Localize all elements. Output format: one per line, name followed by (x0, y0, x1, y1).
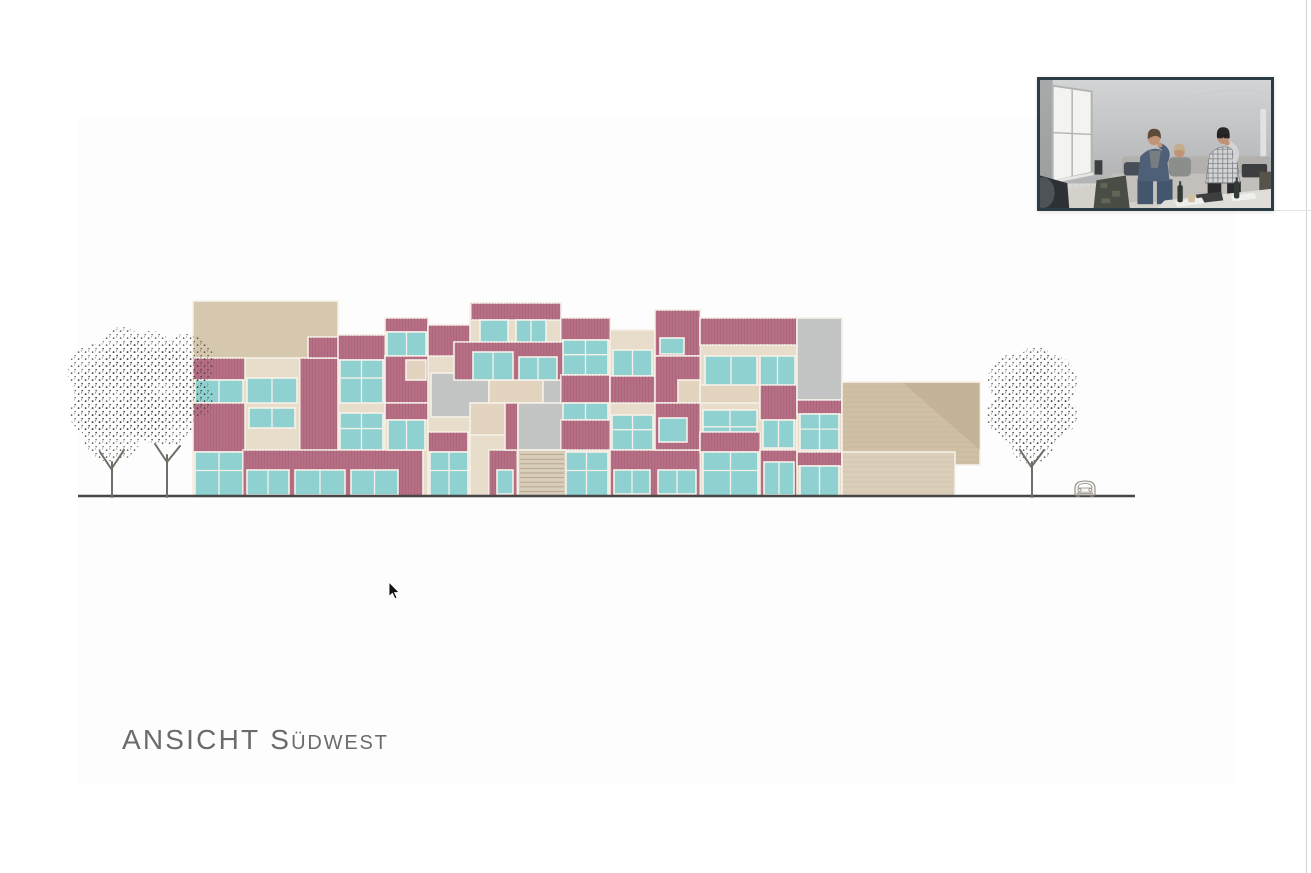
title-sub-initial: S (270, 724, 291, 755)
mouse-cursor (389, 582, 399, 599)
facade-block (406, 360, 426, 380)
slide-title: ANSICHT SÜDWEST (122, 724, 389, 756)
bottle (1234, 181, 1239, 198)
webcam-scene (1040, 80, 1271, 208)
facade-block (700, 385, 760, 403)
title-sub-rest: ÜDWEST (291, 732, 388, 754)
speaker (1095, 160, 1103, 174)
car-sketch (1075, 481, 1095, 497)
camo-bag (1094, 176, 1130, 208)
window (1051, 86, 1094, 182)
cup (1188, 195, 1195, 203)
facade-block (480, 320, 508, 344)
facade-block (497, 470, 513, 494)
entry-stair (518, 450, 566, 496)
title-main: ANSICHT (122, 724, 260, 755)
facade-block (797, 318, 842, 400)
facade-block (659, 418, 687, 442)
tree-sketch (986, 346, 1078, 497)
background-window-edge (1274, 210, 1311, 211)
background-window-edge (1306, 0, 1307, 873)
webcam-video-tile[interactable] (1037, 77, 1274, 211)
facade-block (678, 380, 700, 403)
facade-block (518, 403, 566, 450)
facade-layers (68, 301, 1135, 497)
facade-block (660, 338, 684, 354)
bottle (1177, 185, 1182, 202)
building-wing (842, 382, 980, 497)
